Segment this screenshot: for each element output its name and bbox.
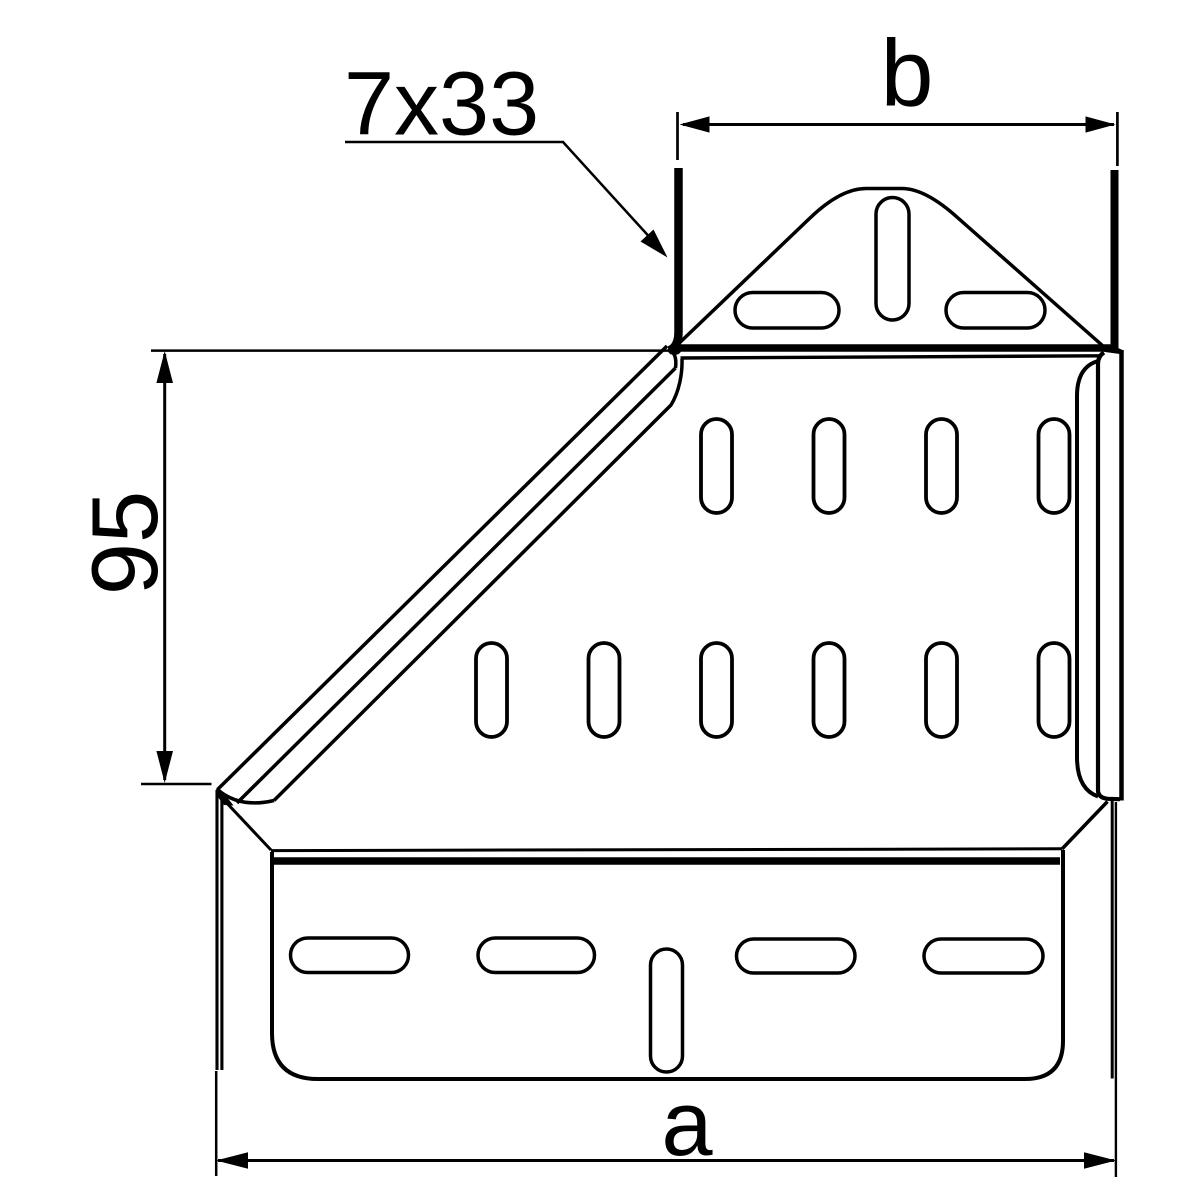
svg-text:95: 95 <box>72 491 177 596</box>
svg-text:b: b <box>881 21 934 127</box>
svg-text:7x33: 7x33 <box>344 55 539 155</box>
